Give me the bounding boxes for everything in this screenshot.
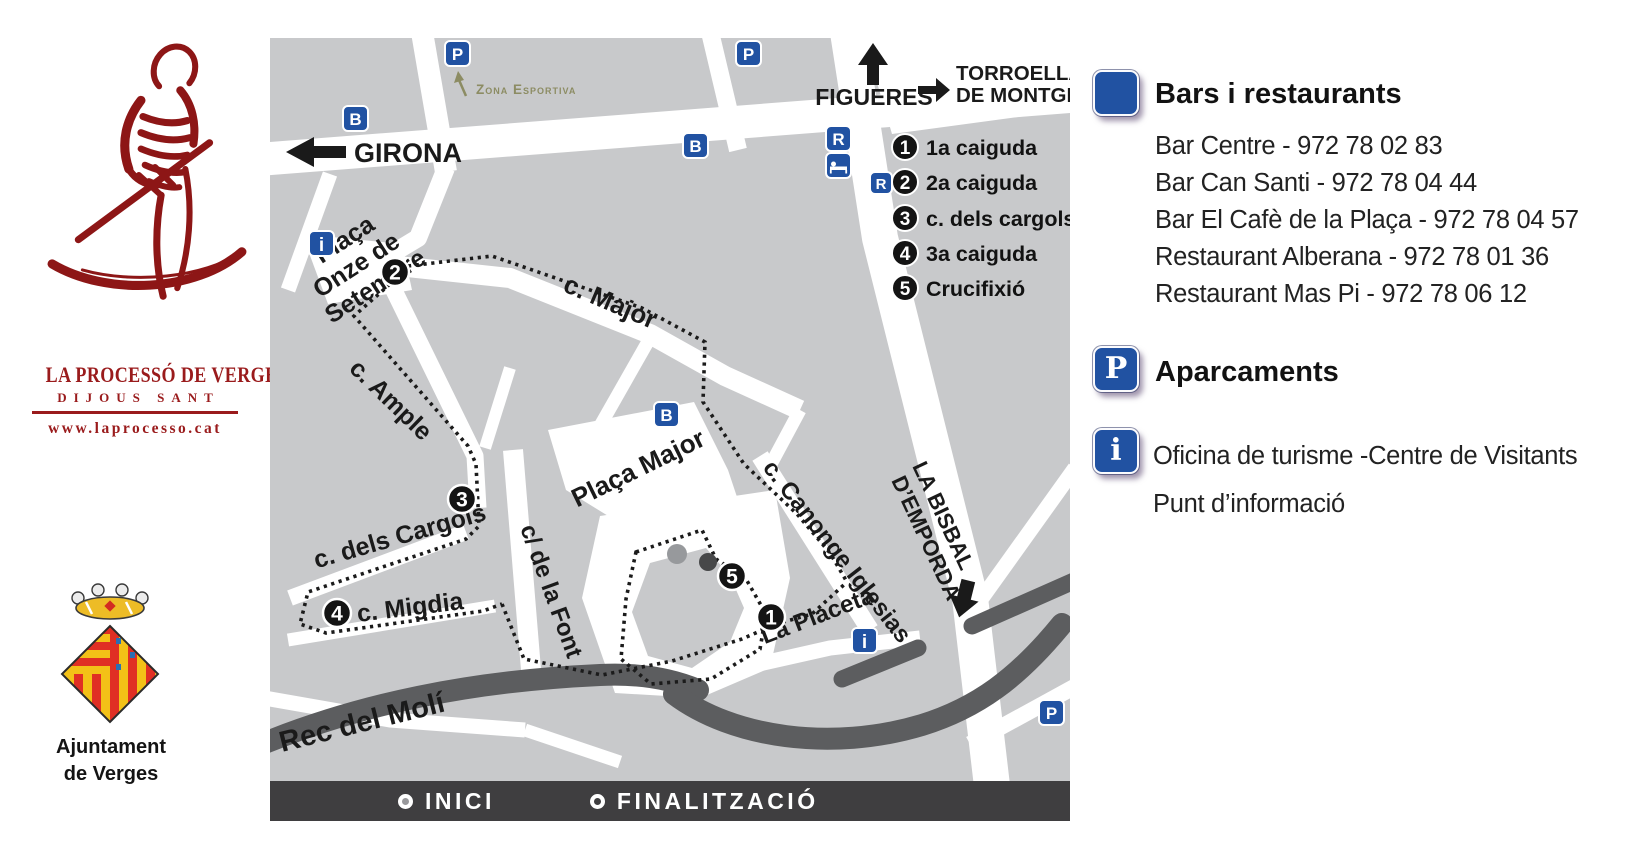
org-line2: de Verges — [26, 761, 196, 788]
route-legend-row: 1 1a caiguda — [892, 134, 1038, 160]
brand-divider — [32, 411, 238, 414]
svg-text:2a caiguda: 2a caiguda — [926, 171, 1038, 195]
end-dot-icon — [590, 794, 605, 809]
info-legend-icon: i — [1093, 428, 1139, 474]
marker-4: 4 — [323, 599, 351, 627]
info-icon: i — [309, 231, 334, 256]
svg-text:1: 1 — [765, 607, 777, 630]
marker-1: 1 — [757, 603, 785, 631]
list-item: Restaurant Alberana - 972 78 01 36 — [1155, 239, 1579, 276]
label-figueres: FIGUERES — [815, 84, 933, 110]
bar-icon: B — [654, 402, 679, 427]
info-line1: Oficina de turisme -Centre de Visitants — [1153, 438, 1577, 475]
parking-icon: P — [1039, 700, 1064, 725]
map-footer-bar: INICI FINALITZACIÓ — [270, 781, 1070, 821]
svg-text:2: 2 — [389, 262, 401, 285]
crown-icon — [72, 584, 148, 619]
brand-block: LA PROCESSÓ DE VERGES DIJOUS SANT www.la… — [26, 362, 244, 438]
info-letter: i — [1110, 436, 1121, 466]
route-end-dot — [699, 553, 717, 571]
start-dot-icon — [398, 794, 413, 809]
route-start-dot — [667, 544, 687, 564]
svg-text:Crucifixió: Crucifixió — [926, 277, 1025, 301]
footer-end-label: FINALITZACIÓ — [617, 788, 819, 815]
svg-text:4: 4 — [331, 603, 343, 626]
brand-title: LA PROCESSÓ DE VERGES — [46, 362, 225, 388]
svg-text:B: B — [660, 406, 672, 425]
svg-text:B: B — [689, 137, 701, 156]
svg-text:3a caiguda: 3a caiguda — [926, 242, 1038, 266]
bar-icon: B — [683, 133, 708, 158]
marker-2: 2 — [381, 258, 409, 286]
bars-section-title: Bars i restaurants — [1155, 78, 1402, 111]
label-torroella-1: TORROELLA — [956, 62, 1070, 85]
parking-section-title: Aparcaments — [1155, 356, 1339, 389]
org-line1: Ajuntament — [26, 734, 196, 761]
svg-text:i: i — [862, 632, 867, 653]
list-item: Bar El Cafè de la Plaça - 972 78 04 57 — [1155, 202, 1579, 239]
bar-icon: B — [343, 106, 368, 131]
svg-text:R: R — [832, 130, 844, 149]
svg-text:P: P — [452, 45, 463, 64]
svg-text:c. dels cargols: c. dels cargols — [926, 207, 1070, 231]
brand-subtitle: DIJOUS SANT — [26, 390, 244, 406]
svg-text:i: i — [319, 235, 324, 256]
restaurant-icon: R — [870, 172, 892, 194]
svg-text:P: P — [1046, 704, 1057, 723]
shield — [62, 626, 158, 722]
footer-end: FINALITZACIÓ — [590, 788, 819, 815]
info-icon: i — [852, 628, 877, 653]
town-map: Plaça Onze de Setembre c. Major c. Ample… — [270, 38, 1070, 821]
verges-coat-of-arms — [58, 578, 164, 730]
svg-text:3: 3 — [900, 209, 911, 230]
svg-text:3: 3 — [456, 489, 468, 512]
map-canvas: Plaça Onze de Setembre c. Major c. Ample… — [270, 38, 1070, 781]
info-line2: Punt d’informació — [1153, 486, 1577, 523]
restaurant-icon: R — [826, 126, 851, 151]
label-torroella-2: DE MONTGRÍ — [956, 84, 1070, 107]
list-item: Bar Centre - 972 78 02 83 — [1155, 128, 1579, 165]
figure-head — [154, 47, 196, 87]
bars-list: Bar Centre - 972 78 02 83 Bar Can Santi … — [1155, 128, 1579, 313]
org-name: Ajuntament de Verges — [26, 734, 196, 788]
parking-letter: P — [1105, 354, 1128, 384]
direction-girona: GIRONA — [286, 137, 462, 168]
route-legend-row: 5 Crucifixió — [892, 275, 1025, 301]
parking-icon: P — [445, 41, 470, 66]
footer-start: INICI — [398, 788, 495, 815]
svg-text:5: 5 — [900, 279, 911, 300]
parking-icon: P — [736, 41, 761, 66]
svg-text:R: R — [876, 176, 887, 193]
parking-legend-icon: P — [1093, 346, 1139, 392]
info-lines: Oficina de turisme -Centre de Visitants … — [1153, 438, 1577, 523]
label-zona-esportiva: Zona Esportiva — [476, 82, 576, 97]
processo-death-figure-logo — [42, 22, 254, 312]
marker-5: 5 — [718, 562, 746, 590]
scythe-blade-arc — [52, 252, 242, 286]
route-legend-row: 4 3a caiguda — [892, 240, 1038, 266]
svg-text:1: 1 — [900, 138, 911, 159]
svg-text:4: 4 — [900, 244, 911, 265]
marker-3: 3 — [448, 485, 476, 513]
list-item: Bar Can Santi - 972 78 04 44 — [1155, 165, 1579, 202]
svg-text:B: B — [349, 110, 361, 129]
hotel-bed-icon — [826, 153, 851, 178]
bars-legend-icon — [1093, 70, 1139, 116]
svg-text:5: 5 — [726, 566, 738, 589]
svg-text:1a caiguda: 1a caiguda — [926, 136, 1038, 160]
footer-start-label: INICI — [425, 788, 495, 815]
svg-text:2: 2 — [900, 173, 911, 194]
list-item: Restaurant Mas Pi - 972 78 06 12 — [1155, 276, 1579, 313]
route-legend-row: 2 2a caiguda — [892, 169, 1038, 195]
label-girona: GIRONA — [354, 138, 462, 168]
brand-website: www.laprocesso.cat — [26, 420, 244, 438]
svg-text:P: P — [743, 45, 754, 64]
